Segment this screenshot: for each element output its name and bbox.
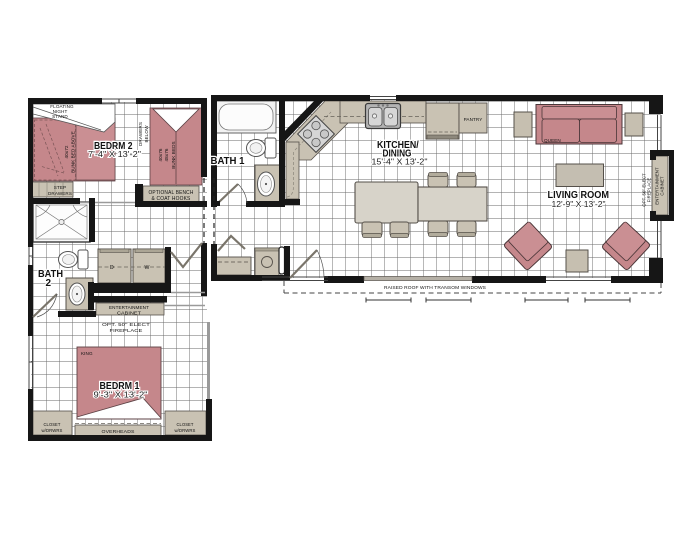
svg-text:OPT. 50" ELECT: OPT. 50" ELECT xyxy=(102,322,150,327)
svg-text:40x72: 40x72 xyxy=(64,145,69,158)
svg-text:STAND: STAND xyxy=(52,114,68,119)
svg-text:& COAT HOOKS: & COAT HOOKS xyxy=(152,196,191,202)
svg-text:48x76: 48x76 xyxy=(164,148,169,161)
svg-text:RAISED ROOF WITH TRANSOM WINDO: RAISED ROOF WITH TRANSOM WINDOWS xyxy=(384,285,486,290)
svg-text:12'-9" X 13'-2": 12'-9" X 13'-2" xyxy=(552,200,606,209)
svg-text:2: 2 xyxy=(46,278,52,289)
svg-text:CABINET: CABINET xyxy=(117,311,141,316)
svg-text:9'-3" X 13'-2": 9'-3" X 13'-2" xyxy=(94,391,148,400)
svg-text:CABINET: CABINET xyxy=(660,176,665,196)
svg-text:DRAWERS: DRAWERS xyxy=(48,191,72,196)
svg-text:w/DRWRS: w/DRWRS xyxy=(42,428,63,433)
svg-text:W: W xyxy=(144,265,149,271)
svg-text:FIREPLACE: FIREPLACE xyxy=(647,178,652,203)
svg-text:BELOW: BELOW xyxy=(144,125,149,143)
svg-text:PANTRY: PANTRY xyxy=(464,117,483,122)
svg-text:15'-4" X 13'-2": 15'-4" X 13'-2" xyxy=(372,158,428,167)
svg-text:ENTERTAINMENT: ENTERTAINMENT xyxy=(109,305,149,310)
svg-text:FIREPLACE: FIREPLACE xyxy=(110,328,143,333)
svg-text:CLOSET: CLOSET xyxy=(44,422,61,427)
svg-text:BATH 1: BATH 1 xyxy=(211,156,245,167)
svg-text:w/DRWRS: w/DRWRS xyxy=(175,428,196,433)
svg-text:BUNK BED ABOVE: BUNK BED ABOVE xyxy=(71,131,76,173)
svg-text:STEP: STEP xyxy=(54,185,66,190)
svg-text:DRAWERS: DRAWERS xyxy=(138,122,143,146)
svg-text:D: D xyxy=(110,265,114,271)
svg-text:BUNK BEDS: BUNK BEDS xyxy=(171,141,176,168)
svg-text:QUEEN: QUEEN xyxy=(544,138,561,143)
svg-text:OVERHEADS: OVERHEADS xyxy=(102,429,135,434)
svg-text:40x76: 40x76 xyxy=(158,148,163,161)
svg-text:7'-4" X 13'-2": 7'-4" X 13'-2" xyxy=(88,150,141,159)
svg-text:KING: KING xyxy=(81,351,93,356)
svg-text:CLOSET: CLOSET xyxy=(177,422,194,427)
